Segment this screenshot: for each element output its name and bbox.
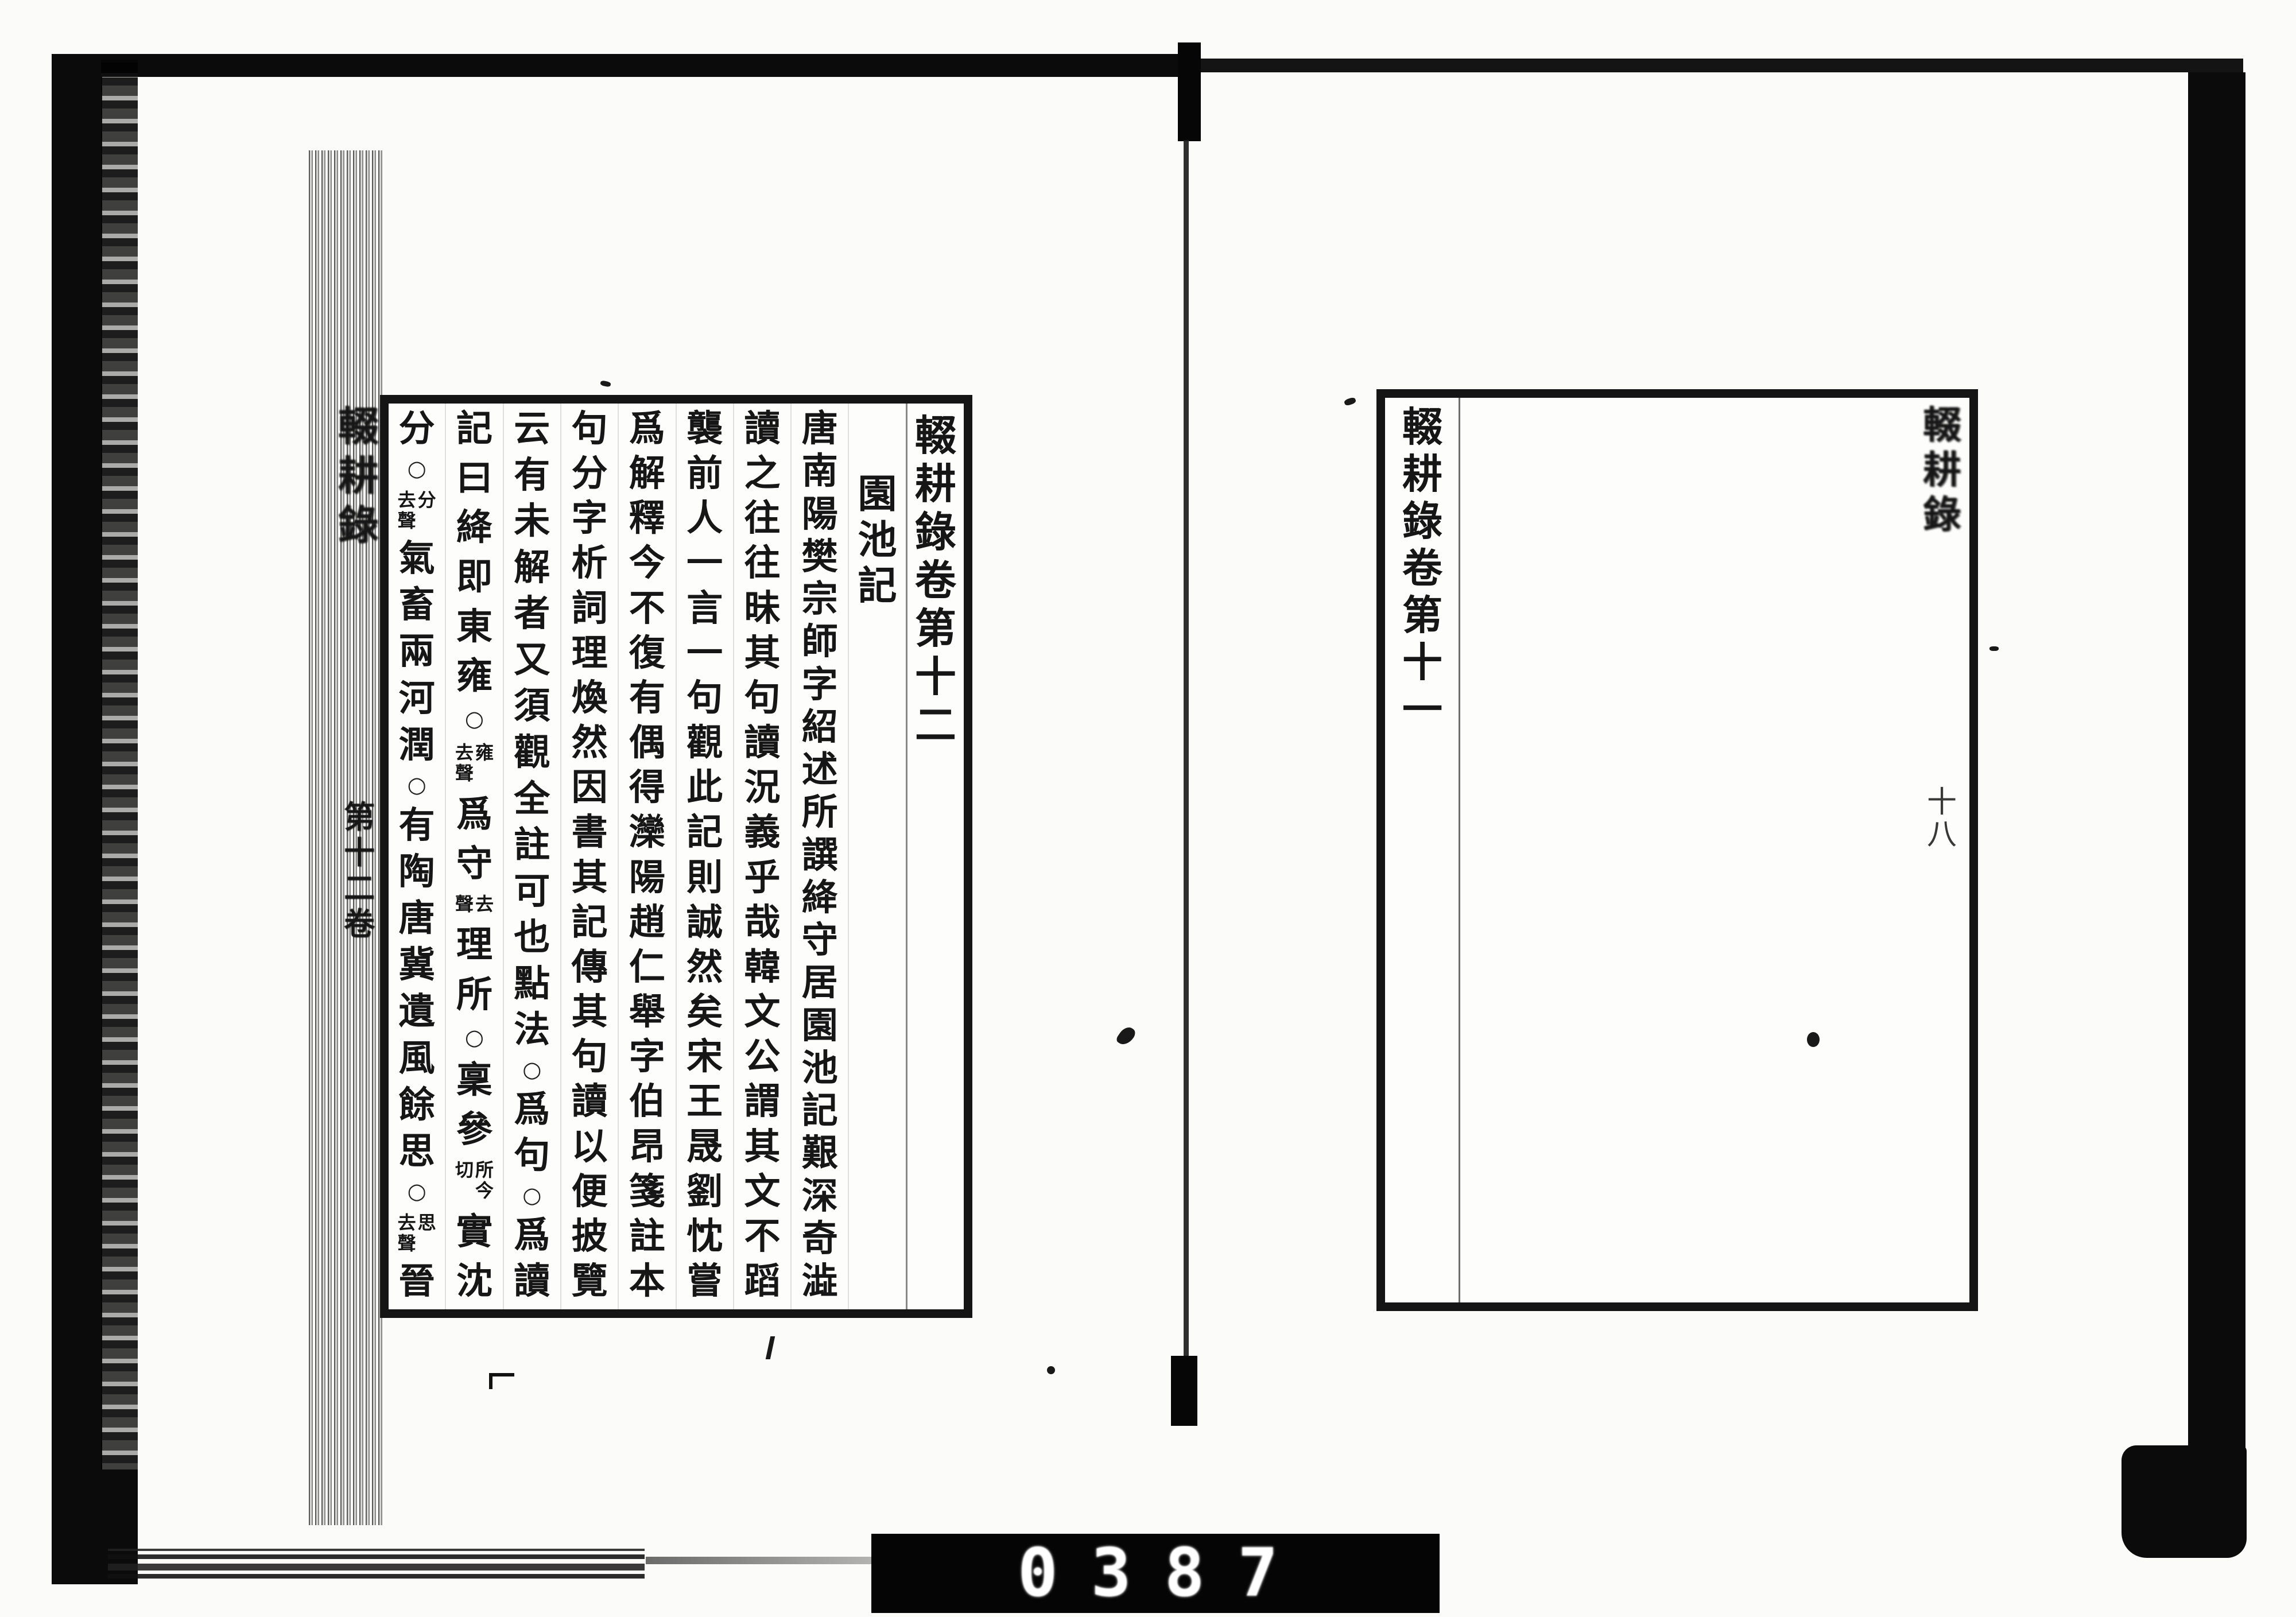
left-column-4: 讀之往往昧其句讀況義乎哉韓文公謂其文不蹈: [734, 404, 792, 1309]
ink-speck: [766, 1336, 775, 1359]
ink-speck: [1989, 646, 1999, 651]
phonetic-annotation: 去聲: [455, 894, 494, 914]
book-spine-top-mark: [1178, 42, 1201, 141]
right-page-text-frame: 輟耕錄卷第十一 輟耕錄 十八: [1376, 389, 1978, 1311]
left-column-10: 分○分去聲氣畜兩河潤○有陶唐冀遺風餘思○思去聲晉: [389, 404, 446, 1309]
left-page-text-frame: 輟耕錄卷第十二園池記唐南陽樊宗師字紹述所譔絳守居園池記艱深奇澁讀之往往昧其句讀況…: [380, 395, 972, 1318]
left-column-3: 唐南陽樊宗師字紹述所譔絳守居園池記艱深奇澁: [792, 404, 849, 1309]
book-spine-center-line: [1184, 140, 1189, 1358]
ink-speck: [1047, 1366, 1055, 1374]
ink-speck: [1807, 1032, 1820, 1047]
left-column-9: 記曰絳即東雍○雍去聲爲守去聲理所○稟參所今切實沈: [446, 404, 503, 1309]
scan-edge-left: [52, 55, 102, 1582]
left-column-8: 云有未解者又須觀全註可也點法○爲句○爲讀: [504, 404, 561, 1309]
scanned-book-spread: 輟耕錄 第十二卷 輟耕錄卷第十二園池記唐南陽樊宗師字紹述所譔絳守居園池記艱深奇澁…: [0, 0, 2296, 1617]
scan-edge-right: [2188, 72, 2245, 1476]
scan-edge-top-right: [1180, 59, 2243, 72]
right-fold-folio-number: 十八: [1921, 786, 1963, 851]
ink-speck: [600, 380, 611, 387]
left-page-columns: 輟耕錄卷第十二園池記唐南陽樊宗師字紹述所譔絳守居園池記艱深奇澁讀之往往昧其句讀況…: [389, 404, 964, 1309]
left-column-7: 句分字析詞理煥然因書其記傳其句讀以便披覽: [561, 404, 619, 1309]
right-page-column-rule: [1459, 398, 1460, 1302]
left-column-1: 輟耕錄卷第十二: [907, 404, 964, 1309]
ink-speck: [489, 1373, 514, 1389]
scan-edge-top-left: [52, 54, 1181, 77]
scan-bottom-streaks: [108, 1549, 645, 1579]
counter-digit: 8: [1165, 1540, 1205, 1607]
left-column-6: 爲解釋今不復有偶得灤陽趙仁舉字伯昂箋註本: [619, 404, 676, 1309]
right-page-closing-column: 輟耕錄卷第十一: [1389, 404, 1456, 733]
phonetic-annotation: 思去聲: [398, 1212, 436, 1254]
ink-speck: [1344, 397, 1356, 406]
left-column-2: 園池記: [849, 404, 907, 1309]
ink-speck: [1115, 1024, 1137, 1048]
left-fold-volume-label: 第十二卷: [335, 799, 383, 941]
left-column-5: 襲前人一言一句觀此記則誠然矣宋王晟劉忱嘗: [677, 404, 734, 1309]
counter-digit: 7: [1238, 1540, 1278, 1607]
left-fold-book-title: 輟耕錄: [332, 402, 385, 550]
phonetic-annotation: 所今切: [455, 1160, 494, 1201]
counter-digit: 3: [1091, 1540, 1131, 1607]
phonetic-annotation: 分去聲: [398, 490, 436, 531]
book-spine-bottom-mark: [1171, 1356, 1197, 1426]
phonetic-annotation: 雍去聲: [455, 742, 494, 784]
frame-counter: 0387: [871, 1534, 1440, 1613]
counter-digit: 0: [1018, 1540, 1058, 1607]
right-fold-book-title: 輟耕錄: [1917, 402, 1967, 537]
scan-blob-bottom-right: [2122, 1445, 2247, 1558]
scan-edge-left-mottled: [101, 60, 138, 1578]
